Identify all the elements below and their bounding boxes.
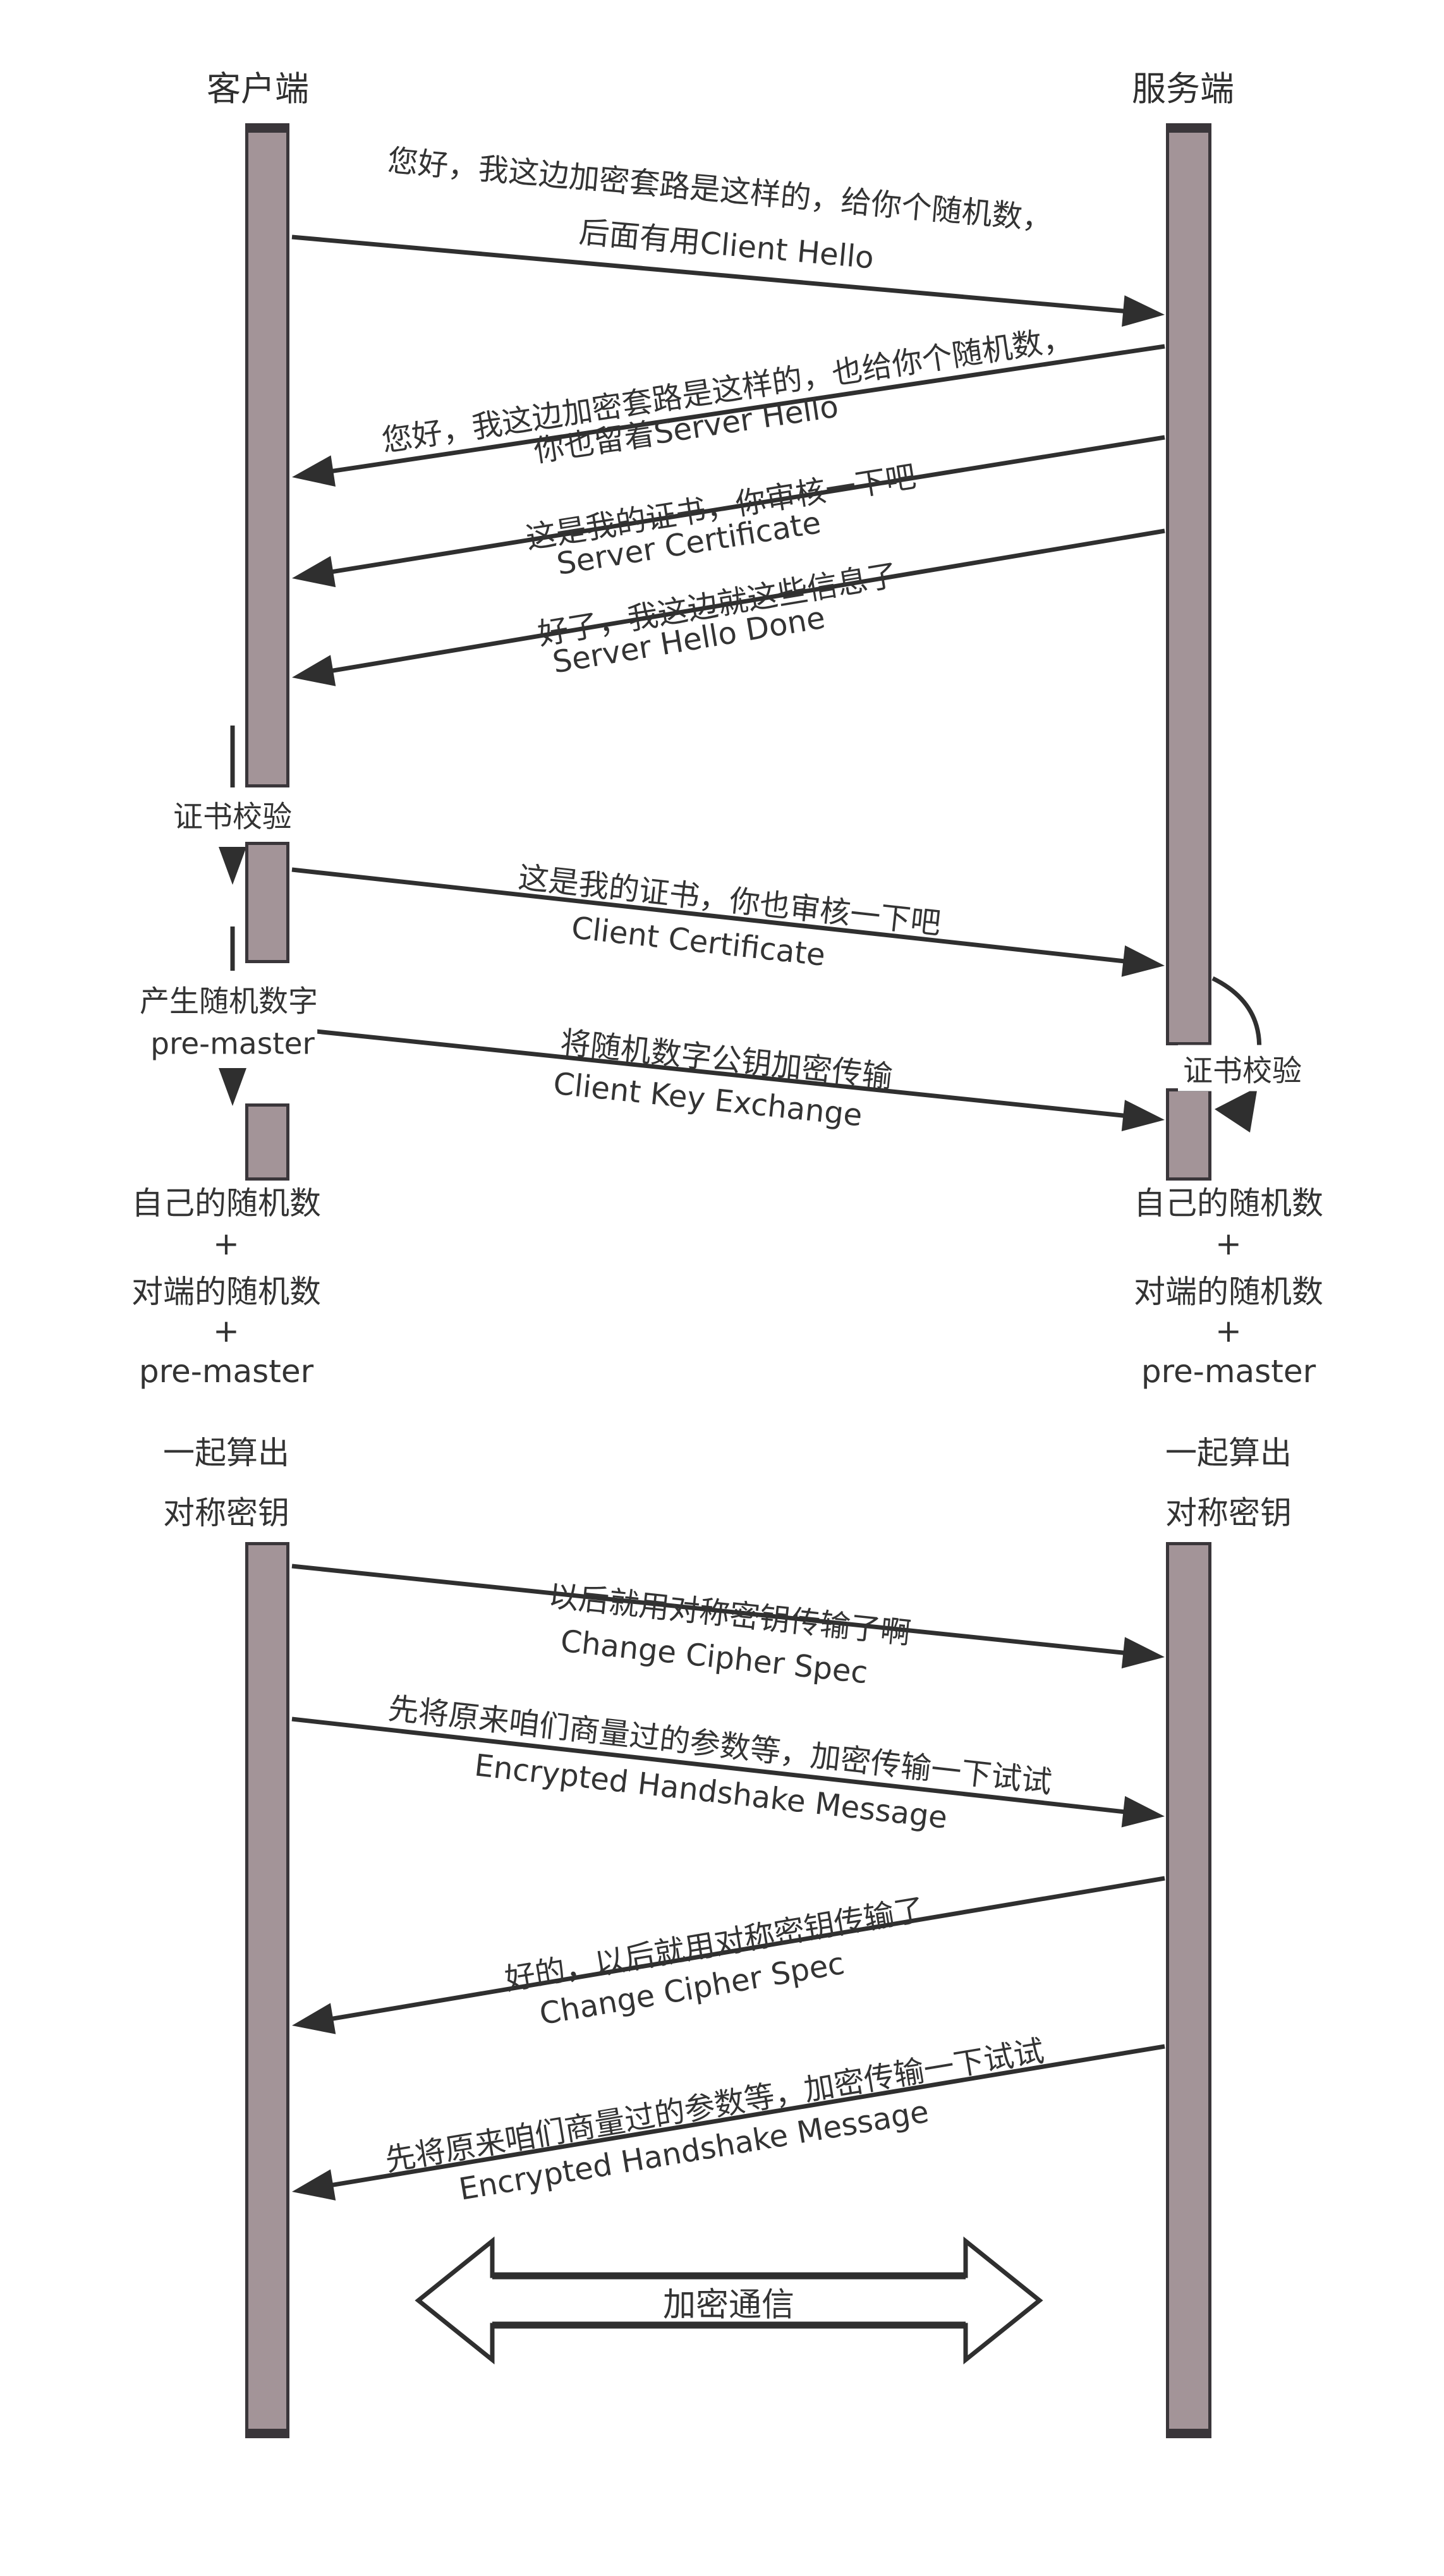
server-lifeline-segment-2	[1166, 1088, 1211, 1181]
message-change-cipher-spec-client-arrow-head	[1122, 1637, 1165, 1668]
server-key-derivation-line-7: 对称密钥	[1165, 1488, 1292, 1533]
message-server-hello-done-arrow-head	[292, 655, 336, 686]
client-flow-arrow-1-head	[219, 847, 246, 885]
server-key-derivation-line-2: +	[1215, 1225, 1242, 1262]
message-change-cipher-spec-server-arrow-head	[292, 2003, 336, 2034]
server-key-derivation-line-3: 对端的随机数	[1134, 1267, 1323, 1312]
server-lifeline-segment-1	[1166, 123, 1211, 1045]
client-key-derivation-line-6: 一起算出	[163, 1428, 289, 1473]
client-lifeline-segment-2	[245, 842, 289, 963]
message-client-certificate-arrow-head	[1122, 945, 1165, 977]
client-flow-arrow-2-head	[219, 1068, 246, 1106]
encrypted-communication-banner-label: 加密通信	[663, 2278, 794, 2326]
message-encrypted-handshake-client-arrow-head	[1122, 1796, 1165, 1828]
message-client-hello-arrow-head	[1122, 295, 1165, 327]
server-verify-curve-head	[1215, 1087, 1258, 1133]
server-key-derivation-line-5: pre-master	[1141, 1353, 1316, 1390]
client-key-derivation-line-2: +	[213, 1225, 240, 1262]
client-lifeline-segment-1	[245, 123, 289, 787]
message-encrypted-handshake-server-arrow-head	[292, 2169, 336, 2200]
message-client-key-exchange-arrow-head	[1122, 1100, 1165, 1131]
message-server-hello-arrow-head	[292, 455, 336, 486]
client-lifeline-segment-4	[245, 1542, 289, 2438]
client-key-derivation-line-4: +	[213, 1313, 240, 1349]
client-lifeline-segment-3	[245, 1103, 289, 1181]
client-key-derivation-line-7: 对称密钥	[163, 1488, 289, 1533]
client-generate-premaster-note-line2: pre-master	[148, 1027, 317, 1062]
client-key-derivation-line-5: pre-master	[139, 1353, 313, 1390]
server-lifeline-segment-3	[1166, 1542, 1211, 2438]
client-key-derivation-line-3: 对端的随机数	[131, 1267, 321, 1312]
server-certificate-verify-note: 证书校验	[1178, 1045, 1307, 1091]
client-generate-premaster-note-line1: 产生随机数字	[137, 977, 320, 1021]
server-key-derivation-line-6: 一起算出	[1165, 1428, 1292, 1473]
server-key-derivation-line-1: 自己的随机数	[1134, 1178, 1323, 1224]
client-certificate-verify-note: 证书校验	[168, 791, 297, 837]
message-server-certificate-arrow-head	[292, 556, 336, 587]
tls-handshake-sequence-diagram: 客户端 服务端 您好，我这边加密套路是这样的，给你个随机数，后面有用Client…	[0, 0, 1444, 2576]
client-key-derivation-line-1: 自己的随机数	[131, 1178, 321, 1224]
server-key-derivation-line-4: +	[1215, 1313, 1242, 1349]
